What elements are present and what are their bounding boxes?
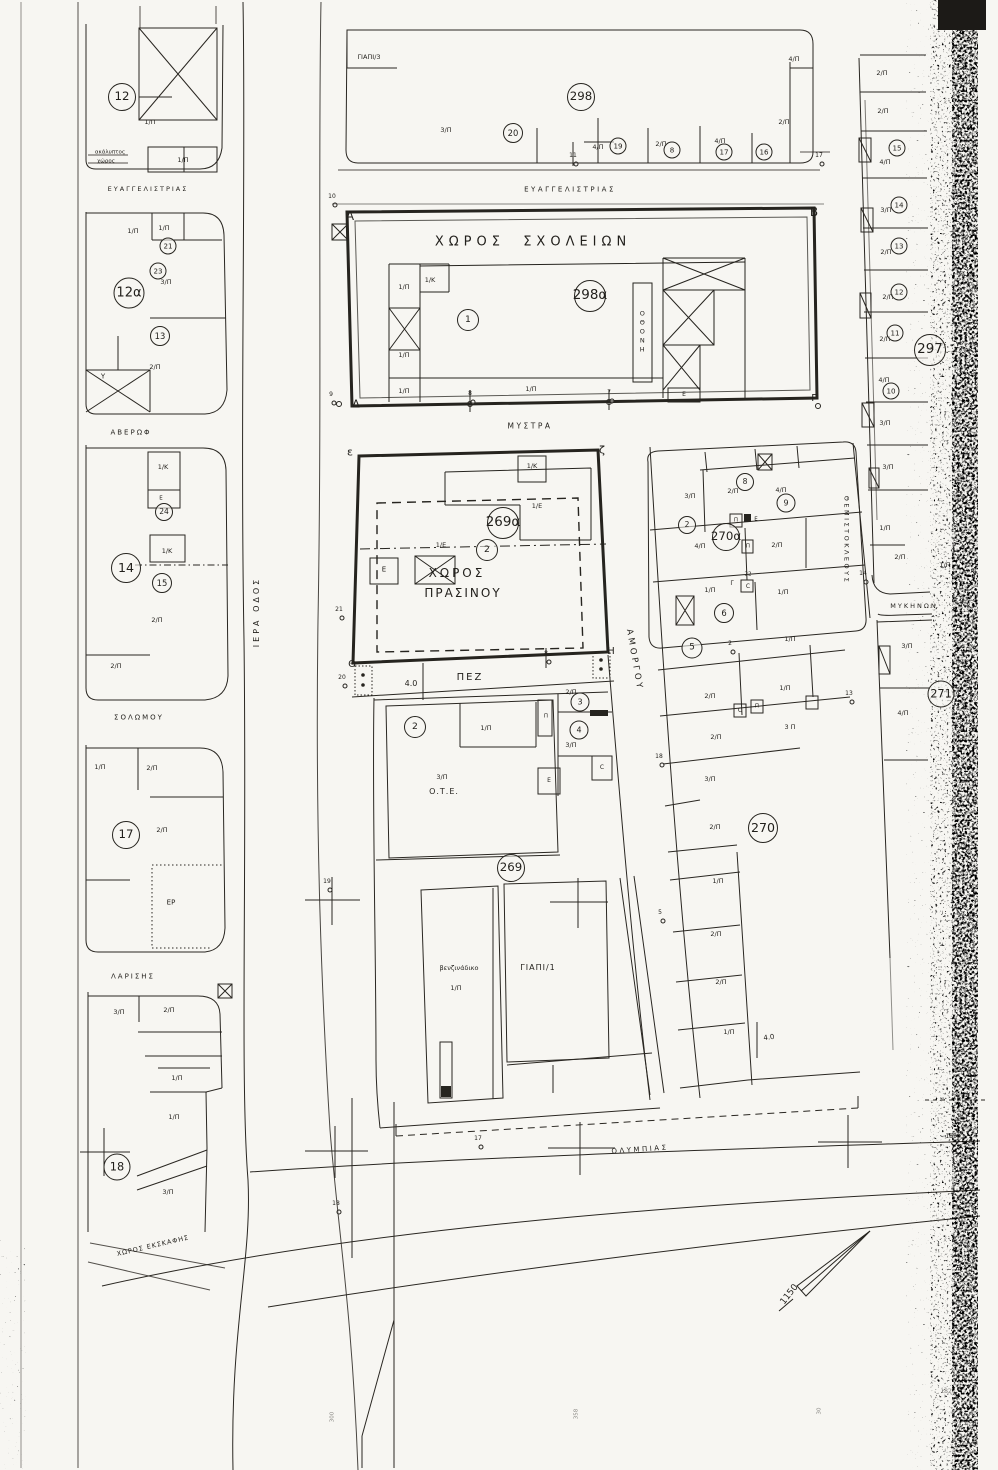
parcel-use-label: 1/Π	[879, 525, 890, 532]
block-number-circle: 297	[914, 334, 946, 366]
survey-point-number: 8	[468, 391, 472, 397]
map-annotation: Ε	[754, 517, 757, 523]
corner-letter: Γ	[811, 394, 817, 404]
area-green-space-line1: ΧΩΡΟΣ	[429, 567, 486, 579]
block-number-circle: 298α	[574, 280, 606, 312]
street-evangelistrias: ΕΥΑΓΓΕΛΙΣΤΡΙΑΣ	[524, 187, 616, 194]
survey-point-number: 18	[332, 1201, 340, 1207]
survey-point-marker	[864, 580, 869, 585]
parcel-use-label: 4/Π	[694, 543, 705, 550]
parcel-use-label: 1/Π	[94, 764, 105, 771]
block-number-circle: 24	[155, 503, 173, 521]
measure-4-0: 4.0	[405, 680, 418, 688]
parcel-use-label: 3/Π	[440, 127, 451, 134]
parcel-use-label: 2/Π	[163, 1007, 174, 1014]
parcel-use-label: 1/Π	[171, 1075, 182, 1082]
map-annotation: C	[738, 708, 742, 714]
block-number-circle: 17	[716, 144, 733, 161]
label-excavation-space: ΧΩΡΟΣ ΕΚΣΚΑΦΗΣ	[116, 1235, 190, 1258]
block-number-circle: 270	[748, 813, 778, 843]
survey-point-marker	[820, 162, 825, 167]
block-number-circle: 270α	[712, 523, 740, 551]
measure-4-0-b: 4.0	[763, 1034, 775, 1042]
parcel-use-label: 4/Π	[879, 159, 890, 166]
parcel-use-label: 1/Ε	[436, 542, 446, 549]
parcel-use-label: 2/Π	[778, 119, 789, 126]
parcel-use-label: 4/Π	[897, 710, 908, 717]
block-number-circle: 14	[111, 553, 141, 583]
parcel-use-label: 3/Π	[704, 776, 715, 783]
survey-point-marker	[337, 1210, 342, 1215]
block-number-circle: 269α	[487, 507, 519, 539]
parcel-use-label: 1/Π	[398, 352, 409, 359]
parcel-use-label: 1/Π	[779, 685, 790, 692]
parcel-use-label: 1/Κ	[527, 463, 538, 470]
survey-point-number: 10	[328, 194, 336, 200]
block-number-circle: 298	[567, 83, 595, 111]
parcel-use-label: 1/Π	[144, 119, 155, 126]
parcel-use-label: 1/Π	[784, 636, 795, 643]
parcel-use-label: 1/Π	[177, 157, 188, 164]
survey-point-number: 17	[474, 1136, 482, 1142]
survey-point-marker	[328, 888, 333, 893]
street-averof: ΑΒΕΡΩΦ	[110, 430, 151, 437]
parcel-use-label: 2/Π	[710, 734, 721, 741]
parcel-use-label: 3/Π	[565, 742, 576, 749]
map-annotation: Ε	[547, 778, 551, 784]
parcel-use-label: 1/Π	[127, 228, 138, 235]
map-annotation: Ε	[159, 496, 162, 502]
block-number-circle: 16	[756, 144, 773, 161]
parcel-use-label: 1/Π	[704, 587, 715, 594]
street-amorgou: ΑΜΟΡΓΟΥ	[624, 628, 643, 691]
block-number-circle: 2	[476, 539, 498, 561]
block-number-circle: 13	[891, 238, 908, 255]
label-ote: Ο.Τ.Ε.	[429, 788, 459, 796]
parcel-use-label: 3/Π	[901, 643, 912, 650]
block-number-circle: 6	[714, 603, 734, 623]
parcel-use-label: 2/Π	[877, 108, 888, 115]
parcel-use-label: 3/Π	[880, 207, 891, 214]
street-themistokleous: ΘΕΜΙΣΤΟΚΛΕΟΥΣ	[843, 496, 850, 584]
map-annotation: Ε	[682, 392, 686, 398]
survey-point-marker	[610, 399, 615, 404]
parcel-use-label: 1/Π	[480, 725, 491, 732]
block-number-circle: 12	[891, 284, 908, 301]
parcel-use-label: 2/Π	[880, 249, 891, 256]
survey-point-marker	[343, 684, 348, 689]
parcel-use-label: 1/Π	[525, 386, 536, 393]
parcel-use-label: 1/Π	[939, 562, 950, 569]
label-giapi-3: ΓΙΑΠΙ/3	[357, 54, 380, 61]
street-solomou: ΣΟΛΩΜΟΥ	[114, 715, 164, 722]
area-green-space-line2: ΠΡΑΣΙΝΟΥ	[424, 587, 501, 599]
map-annotation: 22	[745, 572, 752, 578]
map-annotation: C	[600, 765, 604, 771]
label-uncovered-space-2: χώρος	[97, 159, 115, 165]
parcel-use-label: 3/Π	[879, 420, 890, 427]
parcel-use-label: 2/Π	[894, 554, 905, 561]
survey-point-number: 19	[323, 879, 331, 885]
street-iera-odos: ΙΕΡΑ ΟΔΟΣ	[253, 577, 261, 647]
parcel-use-label: 3/Π	[160, 279, 171, 286]
map-annotation: C	[746, 584, 750, 590]
label-er: ΕΡ	[167, 900, 176, 907]
parcel-use-label: 3/Π	[162, 1189, 173, 1196]
parcel-use-label: 1/Ε	[532, 503, 542, 510]
label-pedestrian-way: ΠΕΖ	[457, 673, 484, 683]
survey-point-marker	[731, 650, 736, 655]
block-number-circle: 12	[108, 83, 136, 111]
block-number-circle: 23	[150, 263, 167, 280]
survey-point-marker	[333, 203, 338, 208]
survey-point-number: 11	[569, 153, 577, 159]
survey-point-number: 8	[544, 651, 548, 657]
label-giapi-1: ΓΙΑΠΙ/1	[520, 964, 555, 972]
parcel-use-label: 4/Π	[592, 144, 603, 151]
parcel-use-label: 1/Π	[712, 878, 723, 885]
block-number-circle: 2	[678, 516, 696, 534]
parcel-use-label: 3/Π	[684, 493, 695, 500]
parcel-use-label: 2/Π	[704, 693, 715, 700]
survey-point-marker	[660, 763, 665, 768]
corner-letter: Α	[346, 210, 354, 222]
block-number-circle: 15	[889, 140, 906, 157]
block-number-circle: 5	[682, 638, 703, 659]
block-number-circle: 20	[503, 123, 523, 143]
parcel-use-label: 2/Π	[146, 765, 157, 772]
block-number-circle: 10	[883, 383, 900, 400]
parcel-use-label: 2/Π	[110, 663, 121, 670]
parcel-use-label: 3/Π	[436, 774, 447, 781]
parcel-use-label: 2/Π	[727, 488, 738, 495]
survey-point-number: 17	[815, 153, 823, 159]
street-mykinon: ΜΥΚΗΝΩΝ	[890, 603, 937, 610]
map-annotation: Π	[734, 518, 738, 524]
survey-point-marker	[479, 1145, 484, 1150]
corner-letter: Η	[607, 647, 615, 657]
label-gas-station: βενζινάδικο	[440, 965, 479, 972]
parcel-use-label: 2/Π	[149, 364, 160, 371]
survey-point-number: 21	[335, 607, 343, 613]
street-evangelistrias-west: ΕΥΑΓΓΕΛΙΣΤΡΙΑΣ	[108, 186, 189, 193]
corner-letter: ζ	[599, 445, 605, 456]
map-annotation: Π	[746, 544, 750, 550]
area-school-grounds: ΧΩΡΟΣ ΣΧΟΛΕΙΩΝ	[435, 236, 631, 249]
parcel-use-label: 2/Π	[715, 979, 726, 986]
parcel-use-label: 3/Π	[882, 464, 893, 471]
parcel-use-label: 2/Π	[156, 827, 167, 834]
map-annotation: 358	[574, 1409, 580, 1420]
block-number-circle: 19	[610, 138, 627, 155]
survey-point-number: 18	[655, 754, 663, 760]
survey-point-number: 2	[728, 641, 732, 647]
block-number-circle: 14	[891, 197, 908, 214]
parcel-use-label: 2/Π	[876, 70, 887, 77]
survey-point-number: 5	[658, 910, 662, 916]
block-number-circle: 15	[152, 573, 172, 593]
map-annotation: Π	[755, 704, 759, 710]
parcel-use-label: 4/Π	[775, 487, 786, 494]
parcel-use-label: 1/Π	[158, 225, 169, 232]
map-annotation: Ε	[382, 567, 386, 574]
parcel-use-label: 1/Π	[450, 985, 461, 992]
parcel-use-label: 3 Π	[784, 724, 795, 731]
parcel-use-label: 2/Π	[151, 617, 162, 624]
block-number-circle: 11	[887, 325, 904, 342]
parcel-use-label: 1/Π	[168, 1114, 179, 1121]
block-number-circle: 2	[404, 716, 426, 738]
block-number-circle: 9	[777, 494, 796, 513]
survey-point-marker	[471, 400, 476, 405]
survey-point-number: 7	[607, 390, 611, 396]
parcel-use-label: 4/Π	[788, 56, 799, 63]
survey-point-number: 14	[859, 571, 867, 577]
block-number-circle: 4	[570, 721, 589, 740]
parcel-use-label: 1/Π	[398, 388, 409, 395]
map-annotation: Υ	[101, 374, 105, 381]
parcel-use-label: 3/Π	[113, 1009, 124, 1016]
map-annotation: 30	[817, 1408, 823, 1415]
survey-point-marker	[332, 401, 337, 406]
elevation-1820: 1820	[940, 1389, 955, 1395]
map-annotation: Π	[544, 714, 548, 720]
block-number-circle: 8	[664, 142, 681, 159]
parcel-use-label: 1/Κ	[425, 277, 436, 284]
parcel-use-label: 1/Κ	[162, 548, 173, 555]
label-uncovered-space-1: ακάλυπτος	[95, 150, 125, 156]
block-number-circle: 3	[571, 693, 590, 712]
label-othoni-vertical: ΟΘΟΝΗ	[639, 310, 646, 355]
parcel-use-label: 2/Π	[710, 931, 721, 938]
map-labels-layer: ΕΥΑΓΓΕΛΙΣΤΡΙΑΣΕΥΑΓΓΕΛΙΣΤΡΙΑΣΑΒΕΡΩΦΙΕΡΑ Ο…	[0, 0, 998, 1470]
survey-point-marker	[850, 700, 855, 705]
street-olympias: ΟΛΥΜΠΙΑΣ	[611, 1145, 669, 1156]
parcel-use-label: 2/Π	[771, 542, 782, 549]
parcel-use-label: 1/Π	[723, 1029, 734, 1036]
corner-letter: ε	[347, 447, 353, 458]
parcel-use-label: 2/Π	[709, 824, 720, 831]
survey-point-marker	[340, 616, 345, 621]
block-number-circle: 269	[497, 854, 525, 882]
block-number-circle: 8	[736, 473, 754, 491]
block-number-circle: 1	[457, 309, 479, 331]
parcel-use-label: 1/Π	[777, 589, 788, 596]
north-arrow-label: 1150	[779, 1283, 800, 1307]
block-number-circle: 13	[150, 326, 170, 346]
elevation-1850: 1850	[945, 1134, 960, 1140]
survey-point-number: 13	[845, 691, 853, 697]
block-number-circle: 17	[112, 821, 140, 849]
survey-point-number: 20	[338, 675, 346, 681]
corner-letter: Θ	[348, 660, 356, 670]
corner-letter: Δ	[352, 399, 360, 410]
block-number-circle: 18	[104, 1154, 131, 1181]
map-annotation: Γ	[730, 581, 733, 587]
block-number-circle: 271	[928, 681, 955, 708]
corner-letter: Β	[810, 206, 818, 218]
survey-point-marker	[547, 660, 552, 665]
block-number-circle: 12α	[114, 278, 145, 309]
survey-point-number: 9	[329, 392, 333, 398]
parcel-use-label: 1/Κ	[158, 464, 169, 471]
survey-point-marker	[661, 919, 666, 924]
map-annotation: 300	[330, 1412, 336, 1423]
survey-point-marker	[574, 162, 579, 167]
street-larisis: ΛΑΡΙΣΗΣ	[111, 974, 155, 981]
cadastral-map-sheet: ΕΥΑΓΓΕΛΙΣΤΡΙΑΣΕΥΑΓΓΕΛΙΣΤΡΙΑΣΑΒΕΡΩΦΙΕΡΑ Ο…	[0, 0, 998, 1470]
block-number-circle: 21	[160, 238, 177, 255]
parcel-use-label: 1/Π	[398, 284, 409, 291]
street-mystra: ΜΥΣΤΡΑ	[507, 422, 552, 430]
